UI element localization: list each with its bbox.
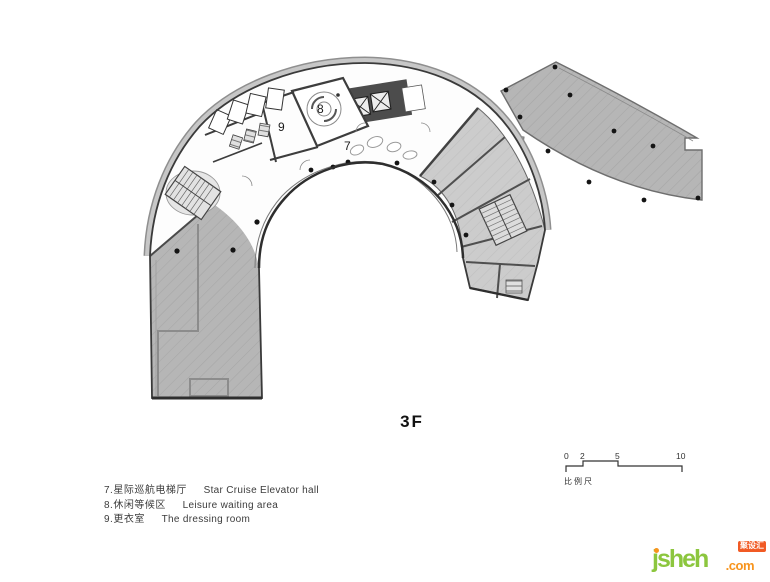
room-label-7: 7 — [344, 139, 351, 153]
logo-tld-text: .com — [726, 559, 754, 572]
room-label-9: 9 — [278, 120, 285, 134]
scale-bar: 0 2 5 10 比例尺 — [558, 448, 708, 490]
scale-tick-10: 10 — [676, 451, 686, 461]
site-logo[interactable]: jsheh .com 聚设汇 — [650, 541, 766, 573]
logo-name-text: jsheh — [652, 547, 707, 572]
floor-plan-page: 7 8 9 3F 0 2 5 10 比例尺 7.星际巡航电梯厅 Star Cru… — [0, 0, 770, 577]
logo-j-dot — [654, 548, 659, 553]
legend-row-9: 9.更衣室 The dressing room — [104, 513, 319, 528]
legend-en-7: Star Cruise Elevator hall — [204, 485, 319, 496]
room-label-8: 8 — [317, 102, 324, 116]
legend-cn-7: 7.星际巡航电梯厅 — [104, 485, 187, 496]
legend-row-7: 7.星际巡航电梯厅 Star Cruise Elevator hall — [104, 484, 319, 499]
logo-badge: 聚设汇 — [738, 541, 766, 552]
floor-title: 3F — [352, 412, 472, 432]
legend-cn-9: 9.更衣室 — [104, 514, 145, 525]
legend-en-8: Leisure waiting area — [183, 500, 279, 511]
scale-tick-0: 0 — [564, 451, 569, 461]
scale-tick-5: 5 — [615, 451, 620, 461]
legend: 7.星际巡航电梯厅 Star Cruise Elevator hall 8.休闲… — [104, 484, 319, 528]
scale-tick-2: 2 — [580, 451, 585, 461]
legend-row-8: 8.休闲等候区 Leisure waiting area — [104, 499, 319, 514]
legend-cn-8: 8.休闲等候区 — [104, 500, 166, 511]
scale-bar-line — [566, 461, 682, 472]
scale-bar-label: 比例尺 — [564, 476, 594, 486]
legend-en-9: The dressing room — [162, 514, 250, 525]
